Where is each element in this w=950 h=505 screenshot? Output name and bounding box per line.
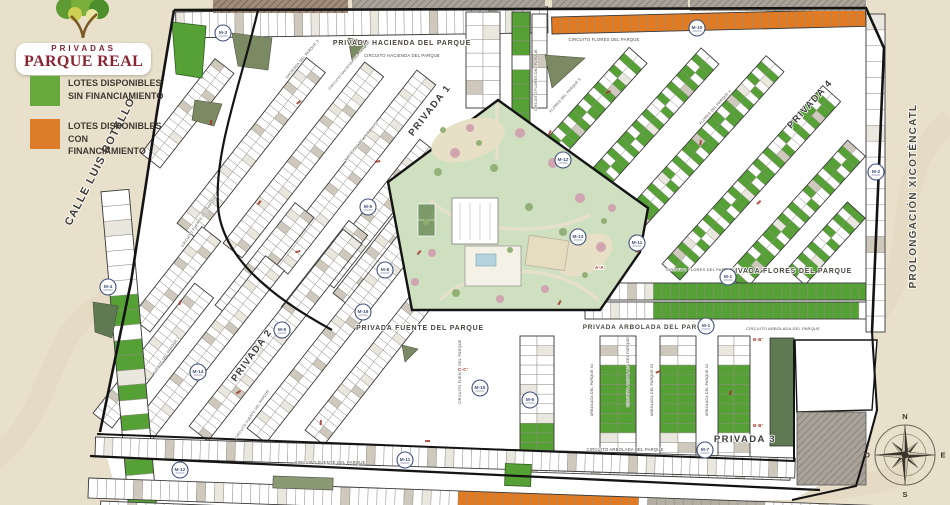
lots-block	[585, 302, 876, 319]
site-plan: PRIVADA HACIENDA DEL PARQUECIRCUITO HACI…	[0, 0, 950, 505]
svg-text:M-2: M-2	[872, 169, 881, 175]
manzana-marker: M-11	[629, 235, 645, 251]
svg-text:M-3: M-3	[219, 30, 228, 36]
park-tree	[496, 295, 504, 303]
brand-logo: PRIVADAS PARQUE REAL	[16, 0, 150, 75]
street-label: CIRCUITO FLORES DEL PARQUE	[569, 37, 640, 42]
park-tree	[452, 289, 460, 297]
street-label: CIRCUITO HACIENDA DEL PARQUE	[364, 53, 440, 58]
street-label: ARBOLADA DEL PARQUE 03	[650, 364, 654, 417]
legend-swatch-orange	[30, 119, 60, 149]
svg-text:M-14: M-14	[193, 369, 204, 375]
brand-plaque: PRIVADAS PARQUE REAL	[16, 43, 151, 75]
svg-text:M-10: M-10	[692, 25, 703, 31]
pool	[476, 254, 496, 266]
svg-text:M-11: M-11	[632, 240, 643, 246]
compass-letter: S	[902, 490, 907, 499]
lots-block	[660, 336, 696, 462]
park-tree	[476, 140, 482, 146]
section-marker: A-A'	[595, 265, 605, 270]
svg-text:M-11: M-11	[400, 457, 411, 463]
manzana-marker: M-5	[360, 199, 376, 215]
street-label: PRIVADA ARBOLADA DEL PARQUE	[583, 324, 714, 331]
legend-label: SIN FINANCIAMIENTO	[68, 90, 163, 103]
street-label: ARBOLADA DEL PARQUE 04	[590, 364, 594, 417]
brand-name: PARQUE REAL	[24, 53, 143, 71]
legend-label: LOTES DISPONIBLES	[68, 77, 163, 90]
playground	[525, 235, 569, 270]
legend: LOTES DISPONIBLES SIN FINANCIAMIENTO LOT…	[30, 76, 163, 171]
street-label: PRIVADA FUENTE DEL PARQUE	[356, 325, 484, 332]
svg-text:M-8: M-8	[381, 267, 390, 273]
manzana-marker: M-3	[215, 25, 231, 41]
street-label: PRIVADA HACIENDA DEL PARQUE	[333, 40, 471, 47]
manzana-marker: M-9	[274, 322, 290, 338]
manzana-marker: M-12	[172, 462, 188, 478]
legend-item-sin-financiamiento: LOTES DISPONIBLES SIN FINANCIAMIENTO	[30, 76, 163, 106]
manzana-marker: M-8	[377, 262, 393, 278]
compass-letter: N	[902, 412, 907, 421]
lots-block	[600, 336, 636, 462]
svg-text:M-13: M-13	[573, 234, 584, 240]
manzana-marker: M-14	[190, 364, 206, 380]
svg-text:M-7: M-7	[701, 447, 710, 453]
manzana-marker: M-13	[570, 229, 586, 245]
street-label: CIRCUITO ARBOLADA DEL PARQUE	[626, 337, 630, 408]
street-label: CIRCUITO FUENTE DEL PARQUE	[295, 460, 366, 465]
park-tree	[541, 285, 549, 293]
park-tree	[559, 228, 567, 236]
lots-block	[466, 12, 500, 108]
compass-letter: O	[864, 451, 870, 460]
svg-text:M-4: M-4	[104, 284, 113, 290]
park-tree	[575, 193, 585, 203]
park-tree	[582, 272, 588, 278]
manzana-marker: M-6	[522, 392, 538, 408]
section-marker: B-B'	[753, 337, 763, 342]
svg-text:M-1: M-1	[724, 274, 733, 280]
manzana-marker: M-12	[555, 152, 571, 168]
section-marker: C-C'	[458, 367, 468, 372]
street-label-prolongacion-xicotencatl: PROLONGACIÓN XICOTÉNCATL	[906, 104, 919, 289]
park-tree	[428, 249, 436, 257]
svg-text:M-12: M-12	[175, 467, 186, 473]
park-tree	[525, 203, 533, 211]
park-tree	[450, 148, 460, 158]
tree-logo-icon	[23, 0, 143, 38]
manzana-marker: M-2	[868, 164, 884, 180]
svg-text:M-9: M-9	[278, 327, 287, 333]
legend-label: LOTES DISPONIBLES	[68, 120, 162, 133]
lots-block	[585, 283, 876, 300]
park-tree	[608, 204, 616, 212]
manzana-marker: M-10	[689, 20, 705, 36]
park-tree	[440, 127, 446, 133]
manzana-marker: M-16	[355, 304, 371, 320]
legend-swatch-green	[30, 76, 60, 106]
legend-item-con-financiamiento: LOTES DISPONIBLES CON FINANCIAMIENTO	[30, 119, 163, 158]
street-label: CIRCUITO ARBOLADA DEL PARQUE	[746, 326, 820, 331]
legend-label: FINANCIAMIENTO	[68, 145, 162, 158]
street-label: PRIVADA FLORES DEL PARQUE	[724, 268, 852, 275]
manzana-marker: M-7	[697, 442, 713, 458]
svg-text:M-12: M-12	[558, 157, 569, 163]
svg-text:M-6: M-6	[526, 397, 535, 403]
section-marker: B-B'	[753, 423, 763, 428]
street-label: CIRCUITO ARBOLADA DEL PARQUE	[587, 447, 664, 452]
legend-label: CON	[68, 133, 162, 146]
brand-privadas: PRIVADAS	[24, 44, 143, 53]
park-tree	[411, 278, 419, 286]
privada-label: PRIVADA 3	[714, 434, 776, 445]
manzana-marker: M-4	[100, 279, 116, 295]
park-tree	[423, 219, 429, 225]
svg-text:M-15: M-15	[475, 385, 486, 391]
park-tree	[507, 247, 513, 253]
manzana-marker: M-1	[720, 269, 736, 285]
svg-text:M-16: M-16	[358, 309, 369, 315]
park-tree	[601, 218, 607, 224]
street-label: CIRCUITO FLORES DEL PARQUE	[534, 49, 538, 111]
park-tree	[434, 168, 442, 176]
compass-letter: E	[940, 451, 945, 460]
street-label: ARBOLADA DEL PARQUE 02	[705, 364, 709, 417]
svg-text:M-5: M-5	[364, 204, 373, 210]
park-tree	[490, 164, 498, 172]
svg-text:M-1: M-1	[702, 323, 711, 329]
manzana-marker: M-15	[472, 380, 488, 396]
park-tree	[466, 124, 474, 132]
manzana-marker: M-1	[698, 318, 714, 334]
clubhouse	[452, 198, 498, 244]
park-tree	[596, 242, 606, 252]
annotation-tick	[210, 120, 212, 125]
park-tree	[515, 128, 525, 138]
annotation-tick	[425, 440, 430, 442]
manzana-marker: M-11	[397, 452, 413, 468]
